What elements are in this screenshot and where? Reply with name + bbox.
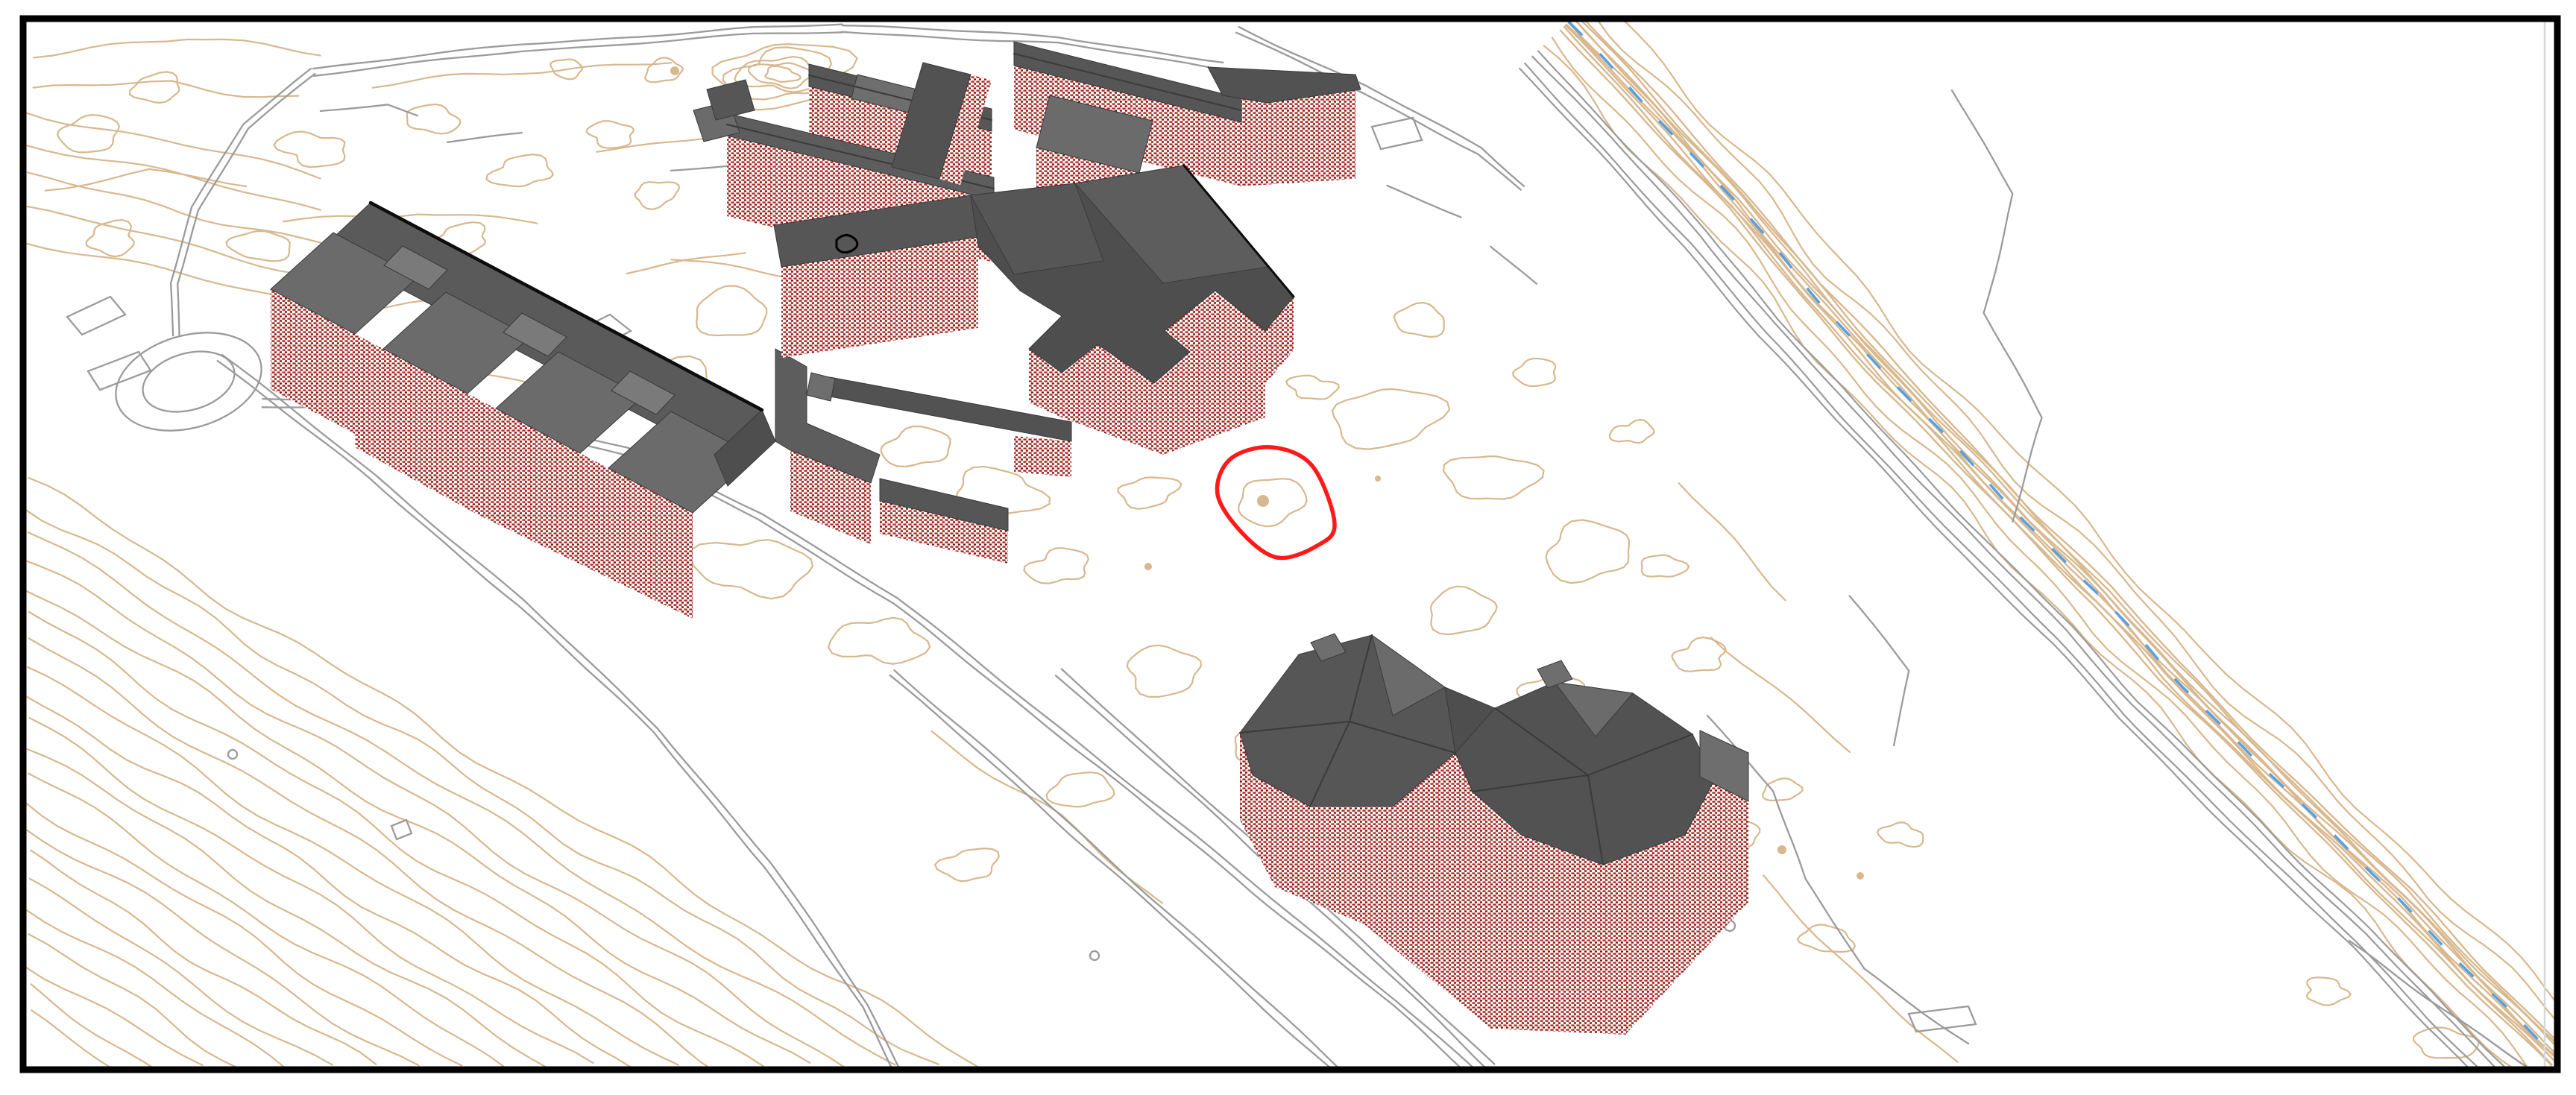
- terrain-dot: [1257, 495, 1269, 507]
- terrain-dot: [1777, 845, 1786, 854]
- terrain-dot: [1375, 476, 1381, 482]
- cad-viewport: [0, 0, 2576, 1095]
- terrain-dot: [1857, 872, 1864, 880]
- terrain-dot: [670, 66, 679, 75]
- terrain-dot: [1144, 563, 1152, 570]
- wall-hatch-face: [1014, 436, 1071, 477]
- site-plan-3d-view: [0, 0, 2576, 1095]
